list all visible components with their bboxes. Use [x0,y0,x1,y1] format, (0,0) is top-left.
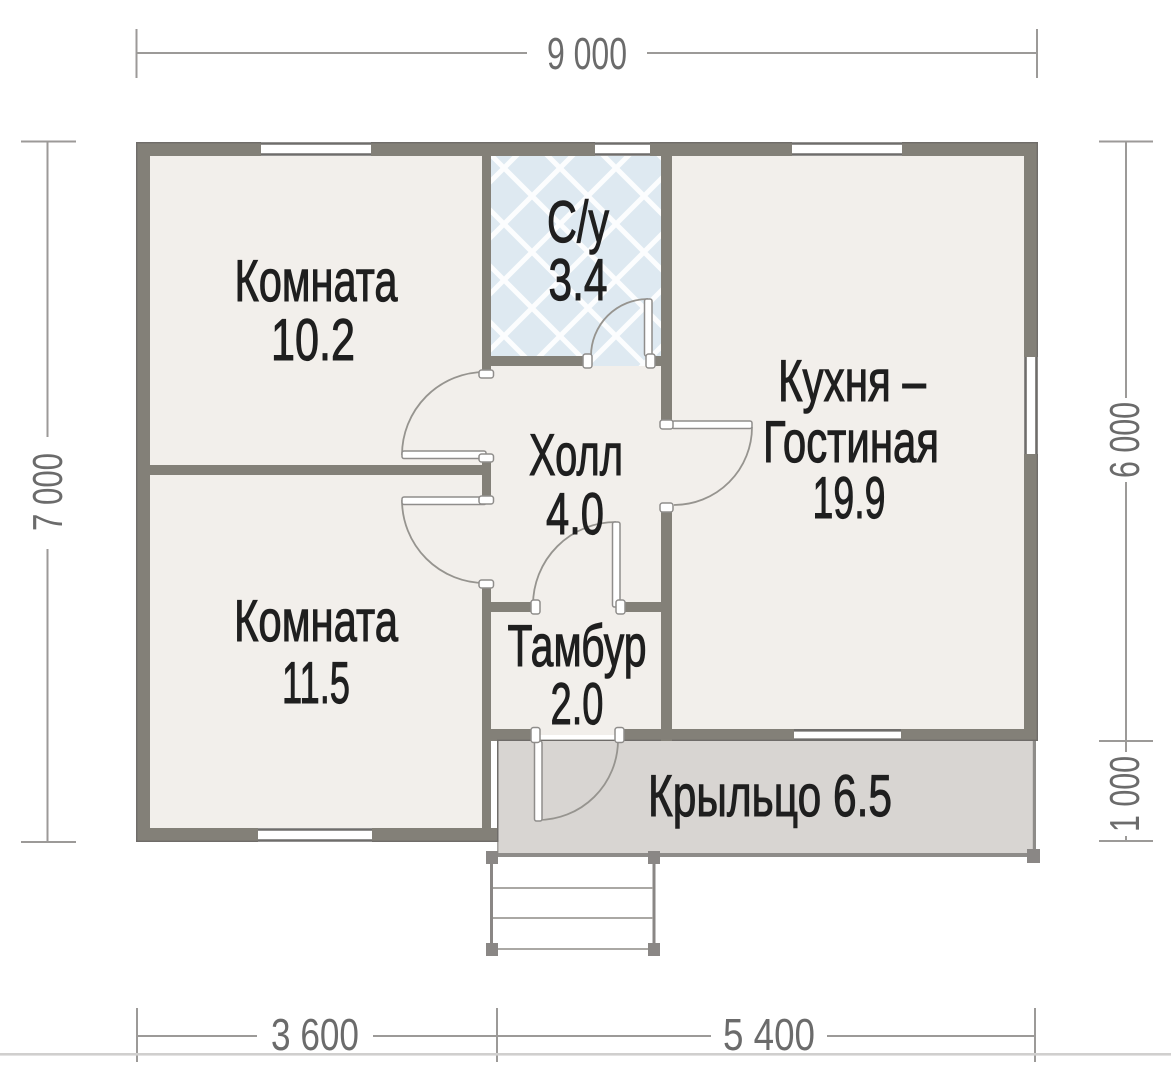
svg-text:С/у: С/у [547,189,609,255]
svg-text:3 600: 3 600 [271,1009,359,1060]
svg-text:10.2: 10.2 [271,307,355,373]
svg-text:Комната: Комната [235,248,398,314]
svg-text:19.9: 19.9 [813,465,886,531]
svg-text:Крыльцо 6.5: Крыльцо 6.5 [648,763,892,829]
svg-text:11.5: 11.5 [282,650,350,716]
svg-text:Кухня –: Кухня – [778,348,926,414]
svg-text:9 000: 9 000 [547,28,627,79]
svg-text:Тамбур: Тамбур [508,613,647,679]
svg-text:6 000: 6 000 [1101,402,1148,478]
svg-text:3.4: 3.4 [549,247,608,313]
svg-text:1 000: 1 000 [1101,756,1148,832]
svg-text:Холл: Холл [529,422,623,488]
svg-text:4.0: 4.0 [546,481,604,547]
svg-text:7 000: 7 000 [24,453,71,531]
svg-text:5 400: 5 400 [723,1009,815,1060]
svg-text:2.0: 2.0 [551,671,604,737]
svg-text:Комната: Комната [234,588,398,654]
